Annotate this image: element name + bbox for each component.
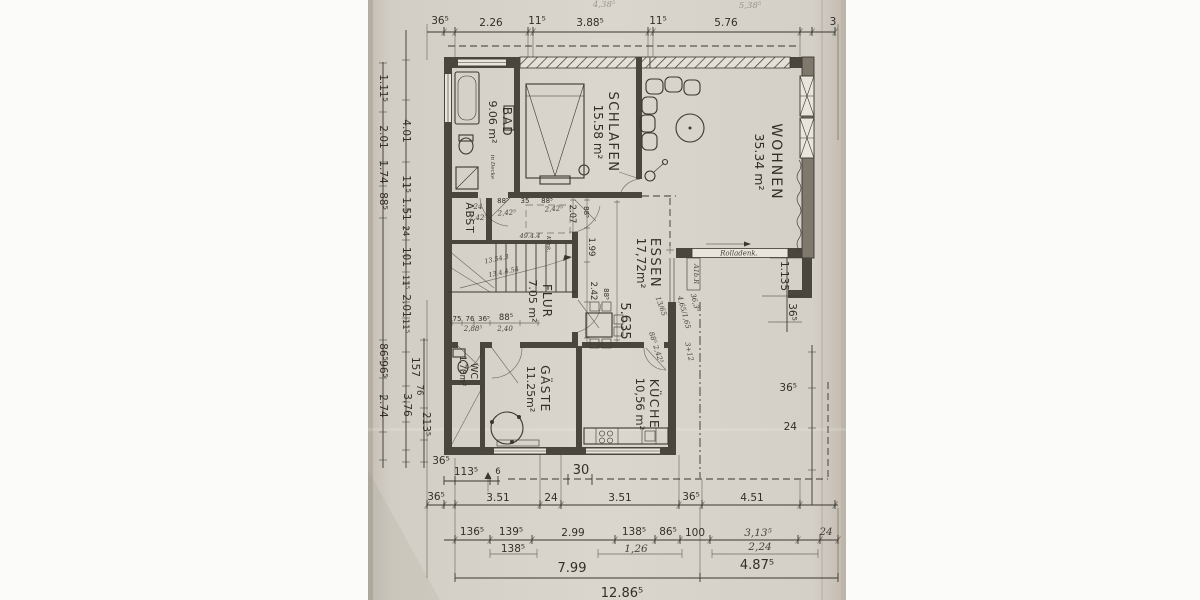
dim-label: 76 [414, 385, 424, 396]
dim-label: 24 [544, 492, 558, 504]
hw-note: in Decke [489, 155, 495, 180]
dim-label: 5.76 [714, 17, 738, 29]
dim-label: 1.51 [400, 197, 412, 220]
dim-label: 96⁵ [377, 360, 389, 378]
room-name-wohnen: WOHNEN [768, 123, 784, 200]
dim-label: 30 [573, 463, 590, 478]
dim-label: 36⁵ [682, 491, 700, 503]
room-name-schlafen: SCHLAFEN [605, 92, 620, 173]
dim-label: 6 [495, 467, 500, 477]
dim-label: 1.99 [586, 238, 596, 257]
dim-label: 86⁵ [377, 343, 389, 361]
dim-label: 3.76 [401, 393, 413, 417]
dim-label: 12.86⁵ [601, 586, 643, 600]
rolladen-label: Rolladenk. [719, 250, 758, 258]
room-area-schlafen: 15.58 m² [591, 105, 605, 160]
dim-label: 138⁵ [501, 543, 525, 555]
dim-label: 88⁵ [377, 192, 389, 210]
dim-label: 157 [409, 357, 421, 377]
dim-label: 76 [466, 315, 475, 323]
dim-label: 75 [453, 315, 462, 323]
dim-label: 36⁵ [427, 491, 445, 503]
hw-note: 2,42⁵ [496, 208, 516, 217]
dim-label: 4.01 [400, 119, 412, 142]
room-area-bad: 9.06 m² [486, 100, 499, 143]
room-area-flur: 7.05 m² [526, 279, 539, 322]
dim-label: 2.26 [479, 17, 503, 29]
room-area-kueche: 10,56 m² [633, 378, 647, 430]
dim-label-handwritten: 2,24 [747, 541, 771, 553]
hw-note: Klink. [545, 235, 551, 253]
room-area-gaeste: 11.25m² [524, 366, 537, 413]
dim-label: 35 [521, 197, 530, 205]
dim-label: 2.07 [567, 205, 577, 224]
room-area-wc: 1.78m² [457, 356, 467, 387]
floorplan-drawing: 36⁵ 2.26 11⁵ 3.88⁵ 11⁵ 5.76 3 4,38⁵ 5,38… [0, 0, 1200, 600]
dim-label: 11⁵ [528, 15, 546, 27]
room-name-gaeste: GÄSTE [538, 365, 553, 413]
dim-label: 11⁵ [649, 15, 667, 27]
room-name-kueche: KÜCHE [647, 379, 663, 430]
hw-note: A1b.R [692, 263, 700, 284]
room-name-bad: BAD [500, 107, 514, 137]
dim-label-faint: 4,38⁵ [592, 0, 616, 10]
dim-label: 100 [685, 527, 705, 539]
dim-label: 36⁵ [432, 455, 450, 467]
hw-note: 2,88⁵ [463, 325, 483, 333]
hw-note: 24 [473, 203, 483, 211]
dim-label: 36⁵ [779, 382, 797, 394]
dim-label: 11⁵ [400, 175, 412, 193]
dim-label: 1.74 [377, 160, 389, 184]
dim-label: 86⁵ [659, 526, 677, 538]
dim-label: 3.51 [608, 492, 631, 504]
dim-label: 3.51 [486, 492, 509, 504]
dim-label-handwritten: 24 [818, 526, 832, 538]
room-area-wohnen: 35.34 m² [752, 134, 767, 191]
room-name-essen: ESSEN [647, 238, 662, 288]
dim-label: 4.51 [740, 492, 763, 504]
dim-label: 88⁵ [541, 197, 553, 205]
hw-note: 2,40 [496, 325, 513, 333]
dim-label: 113⁵ [454, 466, 478, 478]
dim-label: 88⁵ [497, 197, 509, 205]
dim-label: 138⁵ [622, 526, 646, 538]
dim-label: 213⁵ [420, 412, 432, 436]
dim-label: 2.01 [377, 125, 389, 148]
dim-label: 2.99 [561, 527, 584, 539]
dim-label-handwritten: 3,13⁵ [744, 527, 772, 539]
dim-label: 11⁵ [400, 275, 410, 289]
dim-label: 139⁵ [499, 526, 523, 538]
dim-label: 7.99 [558, 561, 587, 576]
paper-background [0, 0, 1200, 600]
dim-label: 36⁵ [786, 303, 798, 321]
hw-note: 2,42⁵ [468, 214, 488, 222]
hw-note: 49.4.4 [519, 232, 541, 240]
dim-label: 88⁵ [602, 288, 610, 300]
room-name-wc: WC [468, 363, 479, 379]
dim-label: 5.635 [617, 302, 632, 339]
dim-label-faint: 5,38⁵ [739, 1, 762, 11]
dim-label: 4.87⁵ [740, 558, 774, 573]
floorplan-scan: 36⁵ 2.26 11⁵ 3.88⁵ 11⁵ 5.76 3 4,38⁵ 5,38… [0, 0, 1200, 600]
dim-label: 3.88⁵ [576, 17, 604, 29]
dim-label: 101 [400, 247, 412, 267]
dim-label: 2.42 [588, 282, 598, 301]
dim-label-handwritten: 1,26 [624, 543, 648, 555]
room-area-essen: 17,72m² [634, 238, 648, 289]
dim-label: 24 [784, 421, 798, 433]
dim-label: 1.11⁵ [377, 74, 389, 102]
dim-label: 136⁵ [460, 526, 484, 538]
dim-label: 88⁵ [499, 313, 513, 323]
dim-label: 2.74 [377, 394, 389, 418]
dim-label: 88⁵ [582, 206, 590, 218]
dim-label: 36⁵ [431, 15, 449, 27]
hw-note: 2,42⁵ [543, 204, 563, 213]
dim-label: 3 [830, 16, 837, 28]
dim-label: 11⁵ [400, 319, 410, 333]
dim-label: 24 [400, 226, 410, 237]
dim-label: 1.135 [778, 261, 790, 291]
room-name-flur: FLUR [540, 284, 554, 318]
dim-label: 2.01 [400, 294, 412, 317]
dim-label: 36⁵ [478, 315, 490, 323]
